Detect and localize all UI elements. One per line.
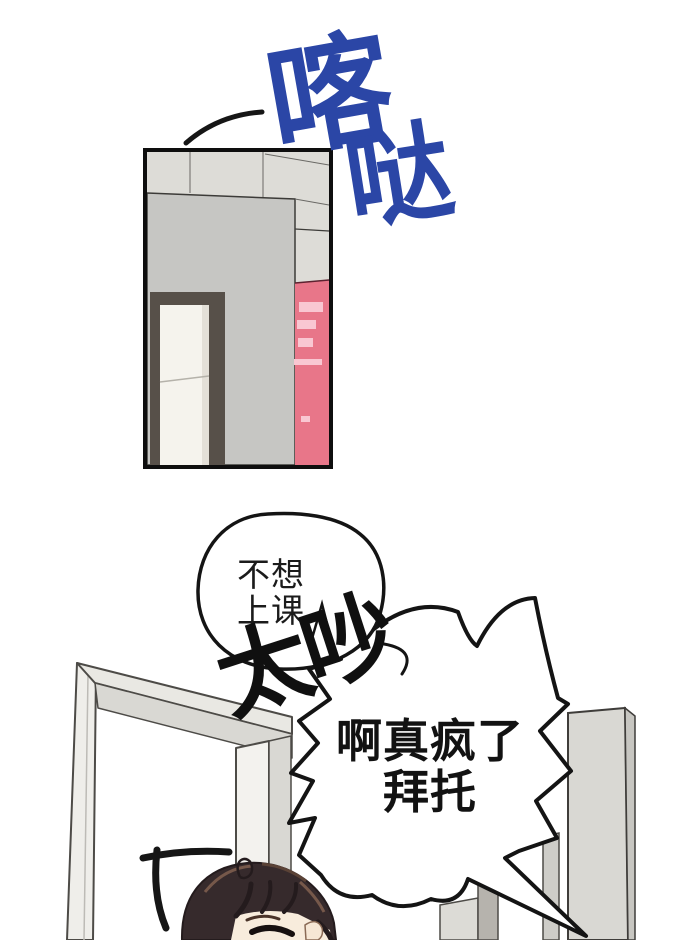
- door: [160, 305, 209, 465]
- round-bubble-line1: 不想: [200, 557, 342, 593]
- spiky-bubble-line2: 拜托: [320, 767, 540, 818]
- sfx-click-char2: 哒: [338, 116, 459, 237]
- spiky-bubble-line1: 啊真疯了: [320, 716, 540, 767]
- ear: [305, 922, 323, 940]
- comic-page: 喀 哒 不想 上课 太吵 啊真疯了 拜托: [0, 0, 700, 940]
- spiky-bubble-text: 啊真疯了 拜托: [320, 716, 540, 818]
- panel-artwork: [147, 152, 329, 465]
- accent-stroke: [186, 112, 262, 143]
- panel-doorway: [143, 148, 333, 469]
- character-head: [182, 859, 336, 940]
